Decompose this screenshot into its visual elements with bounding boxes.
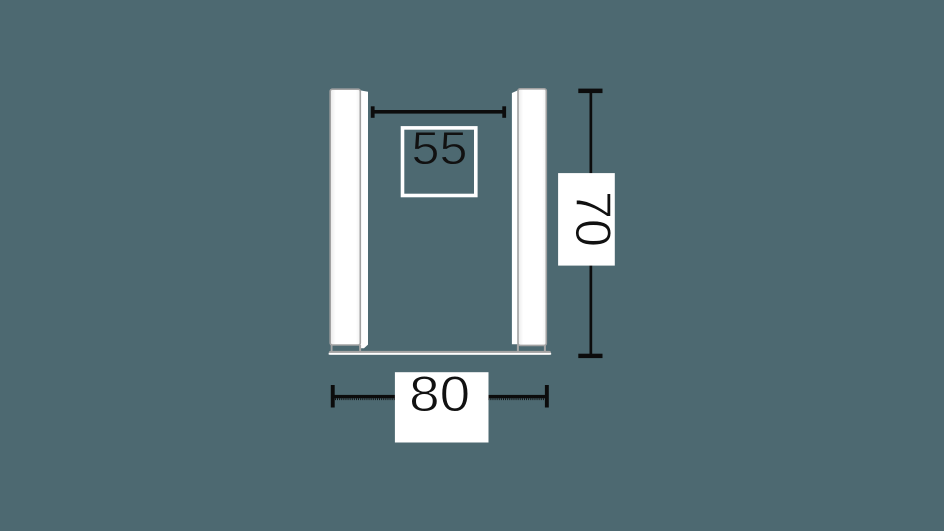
svg-text:80: 80 — [409, 365, 470, 422]
svg-text:70: 70 — [565, 191, 621, 247]
svg-text:55: 55 — [412, 122, 468, 174]
